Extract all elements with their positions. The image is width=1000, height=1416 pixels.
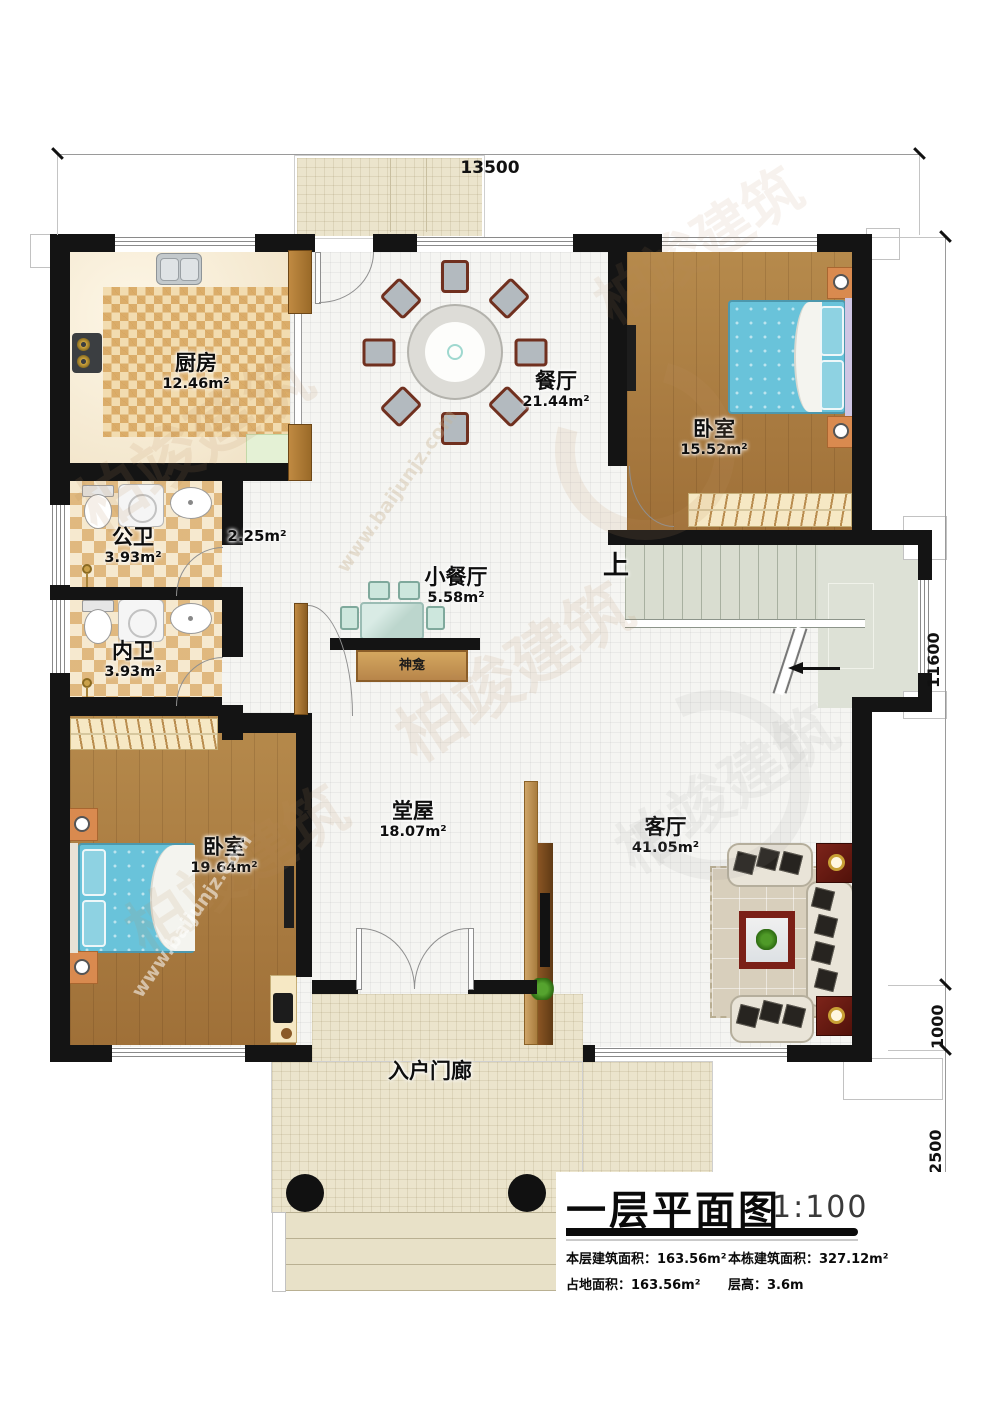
tv-bedroom: [627, 325, 636, 391]
room-label-kitchen: 厨房 12.46m²: [146, 352, 246, 392]
small-dining-table: [360, 602, 424, 640]
bathroom-sink: [170, 603, 212, 634]
washing-machine: [118, 599, 164, 642]
wall: [583, 1045, 595, 1062]
extension-line: [57, 155, 58, 235]
porch-steps: [285, 1212, 570, 1291]
coffee-table-plant: [756, 929, 777, 950]
porch-column: [286, 1174, 324, 1212]
wall: [50, 463, 293, 481]
stair-arrow-icon: [788, 662, 803, 674]
wall: [245, 1045, 312, 1062]
pillow: [82, 900, 106, 947]
window: [52, 505, 66, 585]
bed-duvet: [794, 302, 822, 412]
wall: [608, 234, 627, 466]
wall: [852, 712, 872, 1062]
title-underline: [566, 1228, 858, 1236]
kitchen-sink: [156, 253, 202, 285]
wall: [222, 595, 243, 657]
wall: [852, 697, 932, 712]
window: [417, 237, 573, 249]
small-dining-chair: [426, 606, 445, 630]
room-label-public-bath: 公卫 3.93m²: [85, 526, 181, 566]
room-label-bedroom-tr: 卧室 15.52m²: [658, 418, 770, 458]
dimension-line-top: [57, 154, 920, 155]
bedroom-door-leaf: [294, 603, 308, 715]
small-dining-chair: [368, 581, 390, 600]
entry-porch-slab-right: [583, 1062, 712, 1175]
wall: [852, 234, 872, 545]
wardrobe: [70, 718, 218, 750]
stair-rail: [625, 619, 865, 628]
extension-line: [872, 237, 946, 238]
wall: [50, 1045, 112, 1062]
wall: [787, 1045, 872, 1062]
step-side-rail: [272, 1212, 286, 1292]
kitchen-stove: [72, 333, 102, 373]
dimension-right-step1: 1000: [928, 983, 947, 1049]
room-label-entry-porch: 入户门廊: [368, 1060, 492, 1084]
wall: [330, 638, 480, 650]
dimension-right-building: 11600: [924, 568, 943, 688]
window: [112, 1048, 245, 1059]
title-block: 一层平面图 1:100 本层建筑面积：163.56m² 本栋建筑面积：327.1…: [556, 1172, 1000, 1416]
window: [52, 600, 66, 673]
room-label-bedroom-bl: 卧室 19.64m²: [168, 836, 280, 876]
porch-column: [508, 1174, 546, 1212]
dining-chair: [515, 339, 548, 367]
room-label-hall: 堂屋 18.07m²: [358, 800, 468, 840]
kitchen-sliding-door-track: [294, 314, 302, 424]
room-label-living: 客厅 41.05m²: [608, 816, 723, 856]
extension-line: [888, 1050, 946, 1051]
dining-chair: [441, 412, 469, 445]
kitchen-sliding-door-panel: [288, 424, 312, 481]
stair-direction-line: [802, 667, 840, 670]
kitchen-sliding-door-panel: [288, 250, 312, 314]
wall: [312, 980, 358, 994]
wall: [296, 715, 312, 977]
stairs-up-label: 上: [598, 552, 634, 581]
dimension-right-step2: 2500: [926, 1088, 945, 1174]
wall: [608, 530, 932, 545]
terrace-divider: [390, 158, 391, 232]
small-dining-chair: [340, 606, 359, 630]
dining-chair: [363, 339, 396, 367]
shrine-label: 神龛: [399, 658, 425, 673]
room-label-small-dining: 小餐厅 5.58m²: [400, 566, 512, 606]
toilet-bowl: [84, 494, 112, 529]
floor-plan: 神龛: [0, 0, 1000, 1416]
info-land-area: 占地面积：163.56m²: [566, 1274, 700, 1293]
bathroom-sink: [170, 487, 212, 519]
bed-headboard: [70, 843, 78, 953]
toilet-bowl: [84, 609, 112, 644]
wardrobe: [688, 493, 852, 527]
tv-bedroom: [284, 866, 294, 928]
wall: [50, 673, 70, 1062]
title-underline-shadow: [566, 1239, 858, 1241]
dimension-top-label: 13500: [448, 158, 532, 178]
nightstand: [68, 951, 98, 984]
stair-treads: [625, 545, 820, 622]
terrace-divider: [426, 158, 427, 232]
wall: [373, 234, 417, 252]
scale-label: 1:100: [772, 1190, 868, 1225]
info-total-area: 本栋建筑面积：327.12m²: [728, 1248, 888, 1267]
tv-living: [540, 893, 550, 967]
washing-machine: [118, 484, 164, 527]
corridor-area-label: 2.25m²: [212, 528, 302, 545]
extension-line: [919, 155, 920, 235]
pillow: [82, 849, 106, 896]
room-label-inner-bath: 内卫 3.93m²: [85, 640, 181, 680]
window: [662, 237, 817, 249]
info-floor-area: 本层建筑面积：163.56m²: [566, 1248, 726, 1267]
wall: [468, 980, 537, 994]
window: [595, 1048, 787, 1059]
dining-chair: [441, 260, 469, 293]
window: [115, 237, 255, 249]
dimension-line-right: [945, 237, 946, 1215]
info-floor-height: 层高：3.6m: [728, 1274, 804, 1293]
shrine-cabinet: 神龛: [356, 650, 468, 682]
room-label-dining: 餐厅 21.44m²: [500, 370, 612, 410]
laptop: [273, 993, 293, 1023]
dining-table-centerpiece: [447, 344, 463, 360]
desk-lamp: [281, 1028, 292, 1039]
pillow: [820, 360, 844, 410]
pillow: [820, 306, 844, 356]
nightstand: [68, 808, 98, 841]
tv-partition-light: [524, 781, 538, 1045]
